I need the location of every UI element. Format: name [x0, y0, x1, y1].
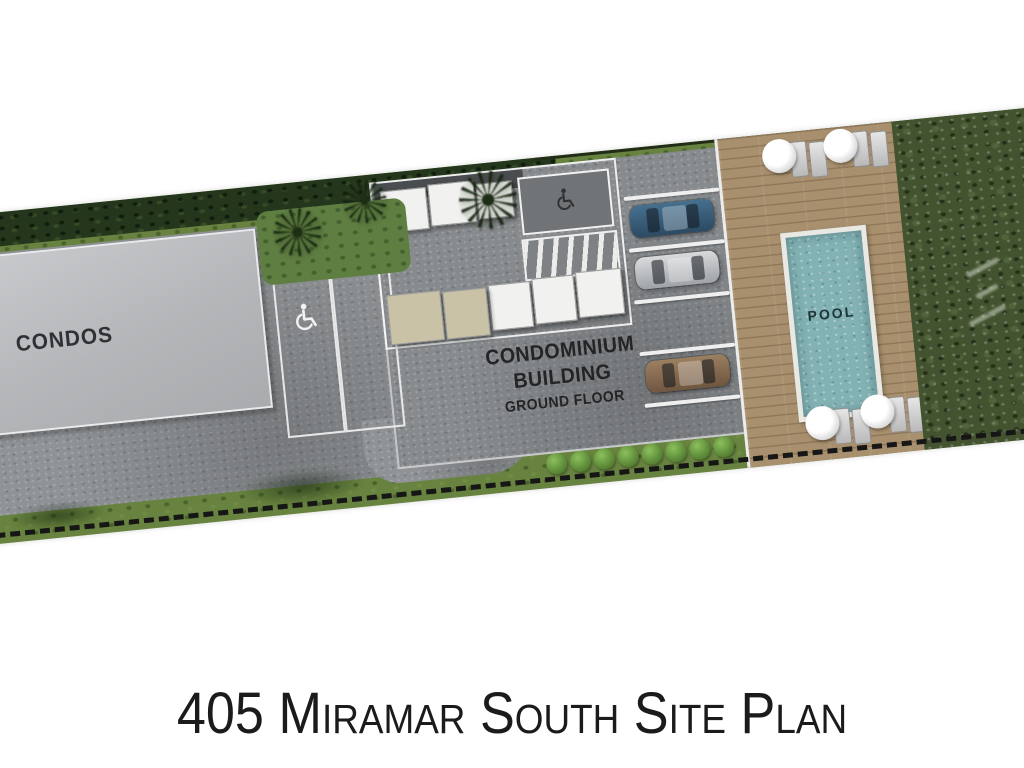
- accessible-parking-icon: [289, 300, 325, 340]
- condos-label: CONDOS: [15, 321, 115, 357]
- accessible-entry-icon: [551, 185, 580, 218]
- car-roof: [662, 205, 688, 231]
- site-plan-image: CONDOS: [0, 0, 1024, 768]
- faint-marking: [969, 304, 1007, 327]
- accessible-entry-box: [517, 168, 614, 235]
- floor-plan-room: [575, 268, 625, 318]
- pool-label: POOL: [793, 302, 870, 326]
- car-roof: [667, 257, 693, 283]
- faint-marking: [975, 284, 999, 300]
- car-rear-window: [701, 359, 715, 384]
- shrub: [617, 445, 640, 468]
- car-windshield: [662, 363, 676, 388]
- floor-plan-room: [531, 275, 577, 325]
- shrub: [665, 440, 688, 463]
- shrub: [641, 442, 664, 465]
- site-strip: CONDOS: [0, 103, 1024, 549]
- shrub: [712, 435, 735, 458]
- umbrella-lounge-set: [859, 390, 927, 440]
- shrub: [593, 447, 616, 470]
- faint-marking: [965, 257, 999, 278]
- umbrella-lounge-set: [761, 134, 829, 184]
- car-windshield: [651, 259, 665, 284]
- shrub: [569, 450, 592, 473]
- car-roof: [678, 360, 704, 386]
- floor-plan-room: [442, 287, 491, 339]
- floor-plan-room: [488, 281, 534, 331]
- car-rear-window: [691, 255, 705, 280]
- shrub: [545, 452, 568, 475]
- floor-plan-room: [386, 290, 445, 345]
- page-title: 405 Miramar South Site Plan: [51, 684, 973, 745]
- shrub: [688, 438, 711, 461]
- lounge-chair: [869, 130, 890, 168]
- car-windshield: [646, 208, 660, 233]
- car-rear-window: [686, 204, 700, 229]
- umbrella-lounge-set: [822, 124, 890, 174]
